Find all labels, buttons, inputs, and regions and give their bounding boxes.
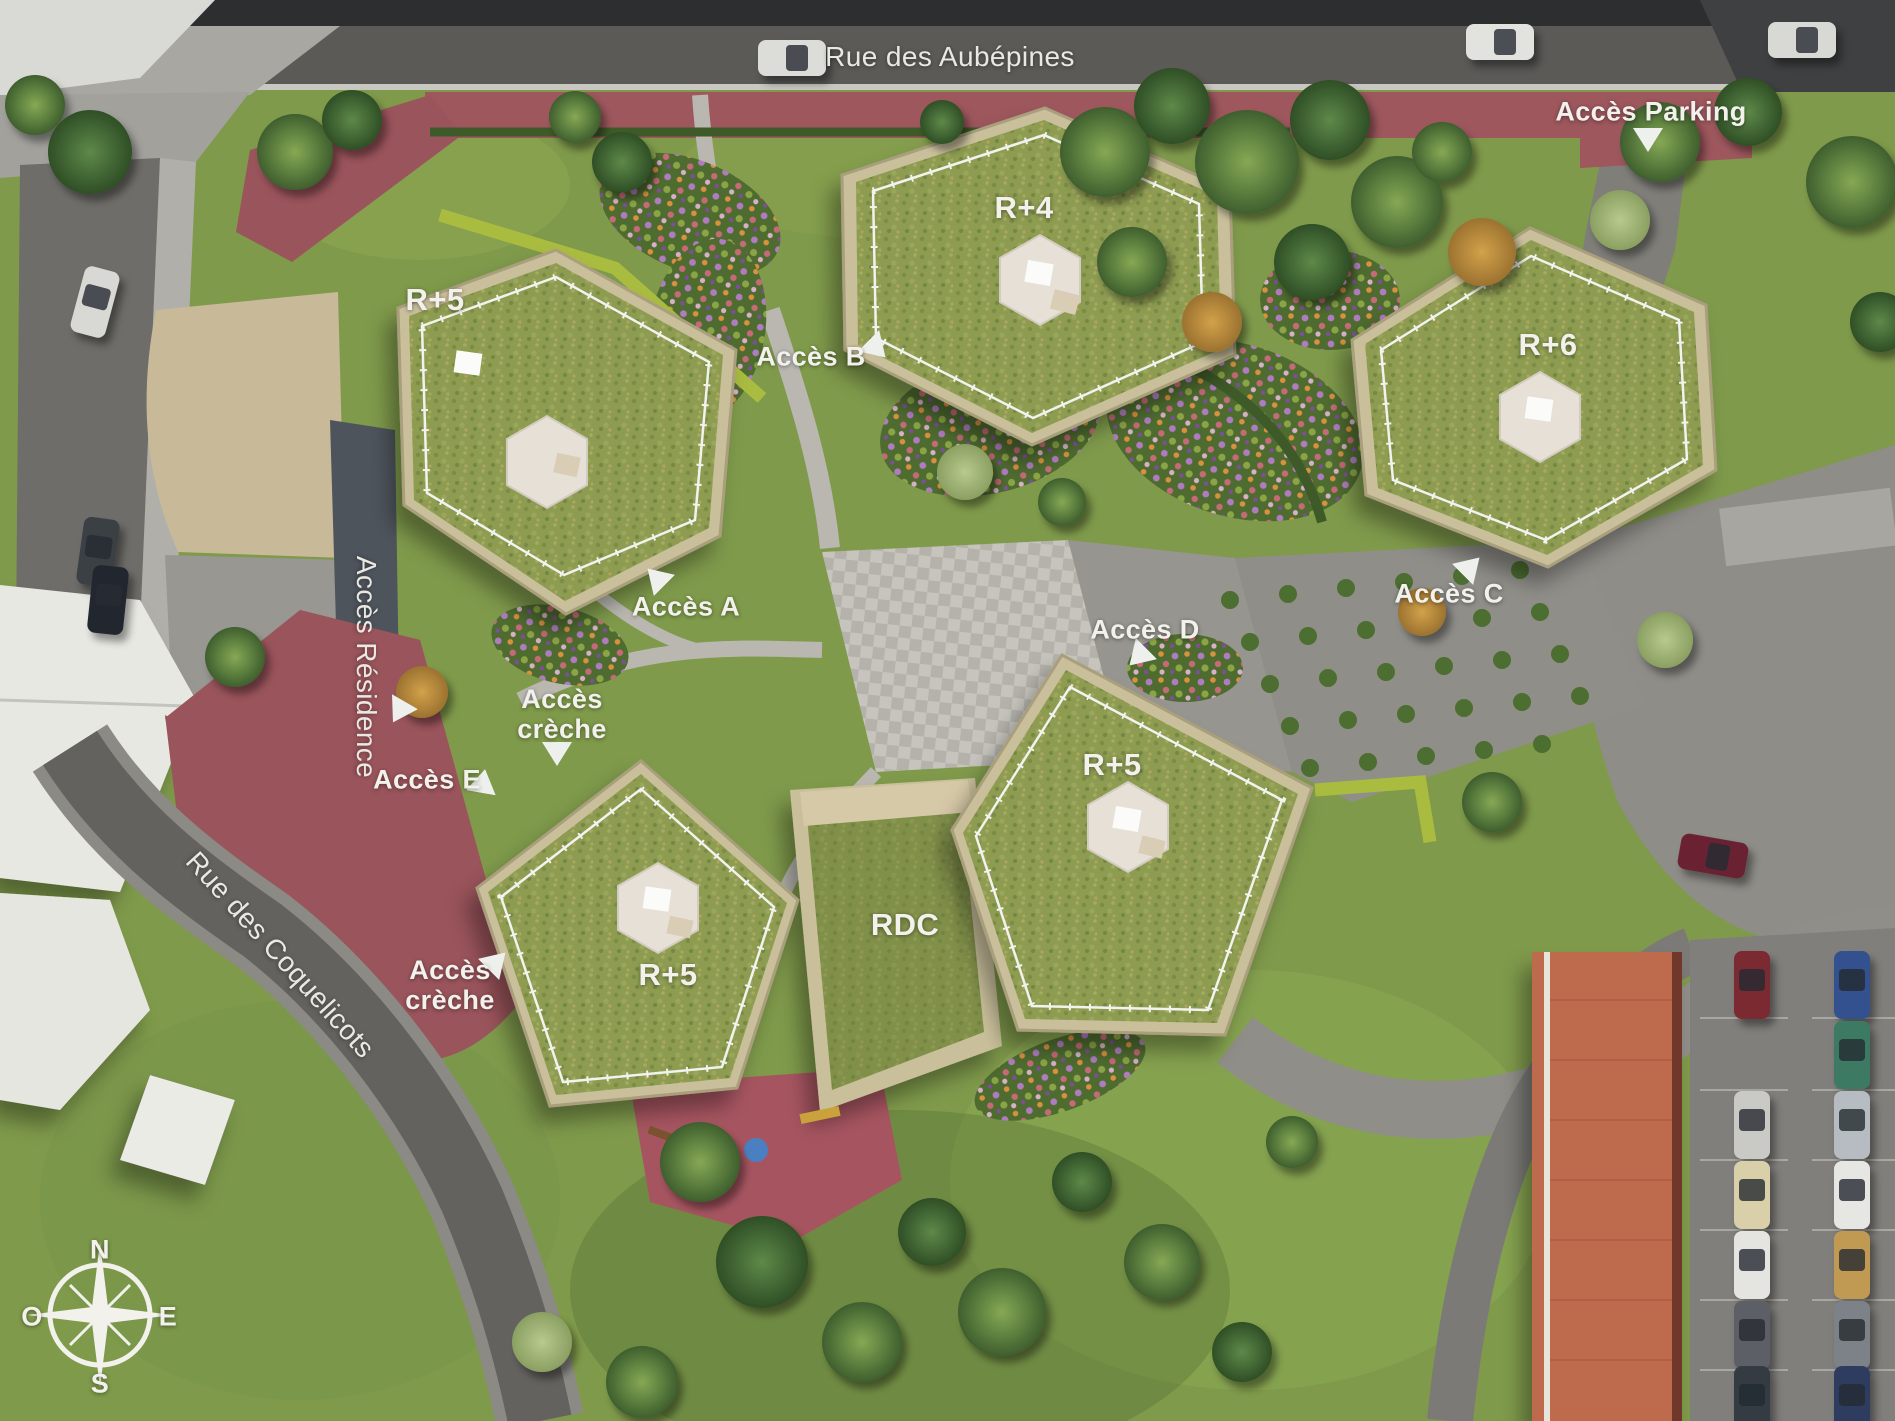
building-red-roof (1532, 952, 1682, 1421)
compass-east-label: E (159, 1302, 177, 1333)
building-label-r5-southwest: R+5 (639, 957, 698, 993)
building-label-r5-center: R+5 (1083, 747, 1142, 783)
building-label-r5-west: R+5 (406, 282, 465, 318)
access-d-label: Accès D (1090, 615, 1199, 646)
street-label-aubepines: Rue des Aubépines (825, 41, 1075, 73)
access-e-label: Accès E (373, 765, 481, 796)
building-label-r6: R+6 (1519, 327, 1578, 363)
access-creche-south-label: Accès crèche (405, 955, 494, 1015)
access-b-label: Accès B (756, 342, 865, 373)
building-label-rdc: RDC (871, 907, 939, 943)
access-a-label: Accès A (632, 592, 740, 623)
access-c-label: Accès C (1394, 579, 1503, 610)
compass-north-label: N (90, 1235, 110, 1266)
building-label-r4: R+4 (995, 190, 1054, 226)
access-creche-north-label: Accès crèche (517, 684, 606, 744)
aerial-render (0, 0, 1895, 1421)
access-parking-label: Accès Parking (1555, 97, 1746, 128)
site-plan: Rue des Aubépines Accès Résidence Rue de… (0, 0, 1895, 1421)
west-plaza (147, 292, 345, 558)
compass-west-label: O (21, 1302, 42, 1333)
compass-south-label: S (91, 1369, 109, 1400)
access-residence-label: Accès Résidence (350, 556, 382, 778)
